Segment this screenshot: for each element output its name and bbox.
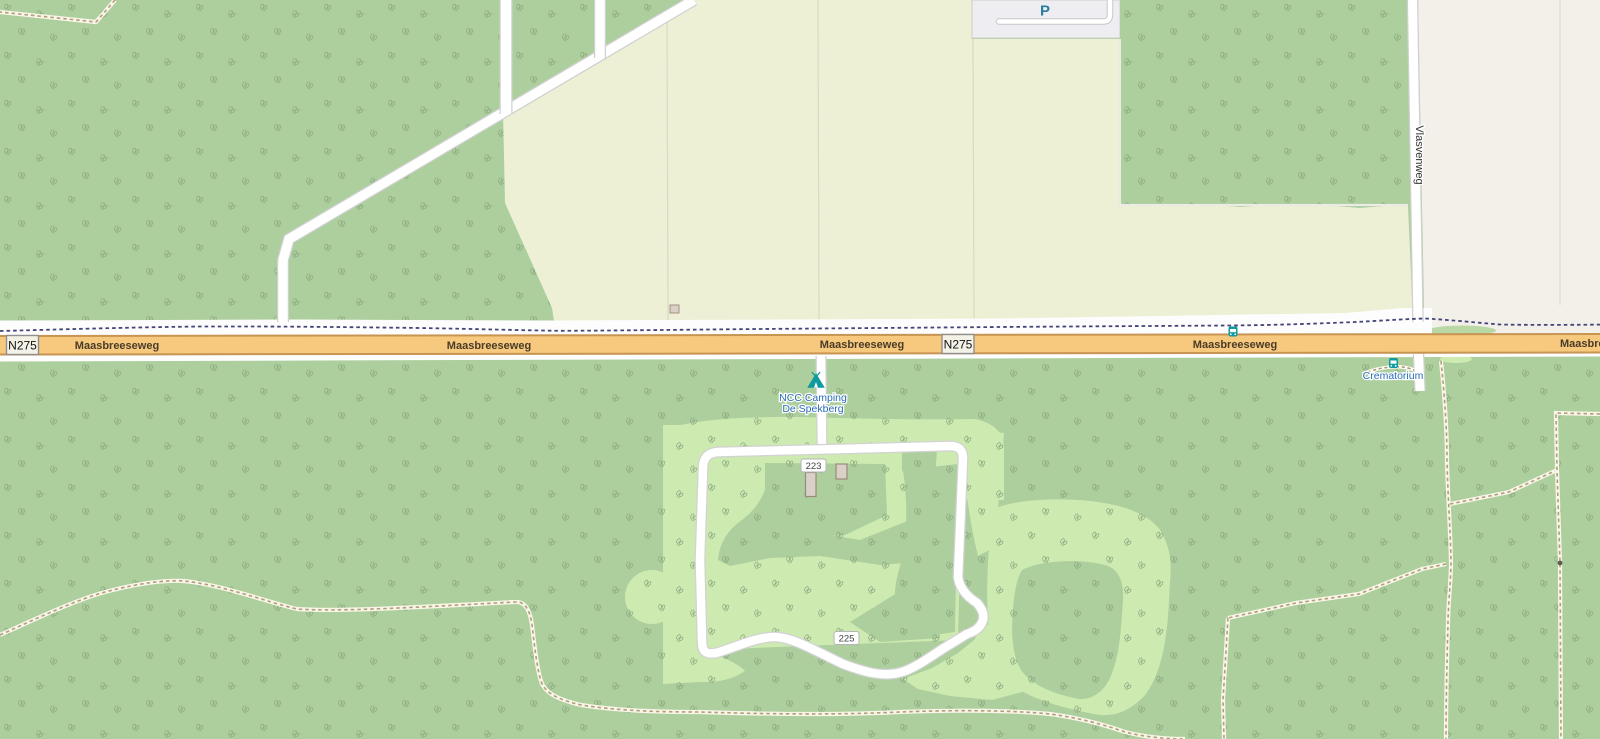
svg-text:N275: N275 bbox=[8, 339, 37, 353]
svg-text:Maasbreeseweg: Maasbreeseweg bbox=[75, 340, 159, 352]
svg-text:225: 225 bbox=[839, 634, 855, 645]
svg-text:Vlasvenweg: Vlasvenweg bbox=[1413, 125, 1425, 184]
svg-text:Maasbreeseweg: Maasbreeseweg bbox=[820, 339, 904, 351]
svg-text:223: 223 bbox=[806, 461, 822, 472]
svg-text:Maasbreeseweg: Maasbreeseweg bbox=[1193, 339, 1277, 351]
svg-text:Crematorium: Crematorium bbox=[1363, 370, 1424, 382]
svg-text:N275: N275 bbox=[944, 338, 973, 352]
svg-text:P: P bbox=[1040, 3, 1050, 20]
svg-text:Maasbreeseweg: Maasbreeseweg bbox=[1560, 338, 1600, 350]
svg-text:Maasbreeseweg: Maasbreeseweg bbox=[447, 340, 531, 352]
svg-text:De Spekberg: De Spekberg bbox=[782, 403, 843, 415]
